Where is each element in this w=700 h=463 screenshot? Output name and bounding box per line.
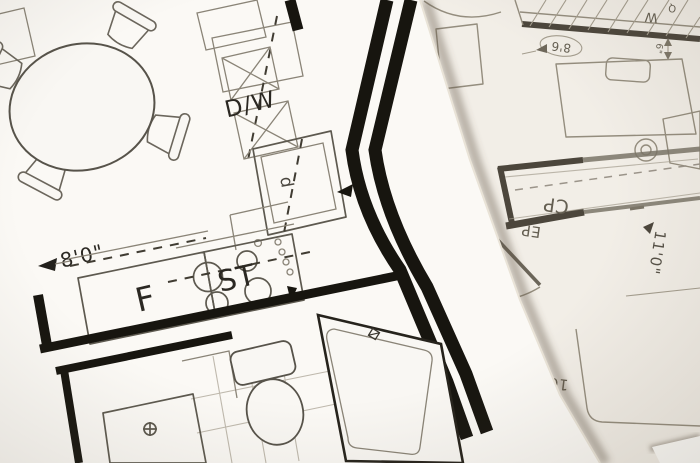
carpet-label: CP [542, 192, 571, 217]
closet-label: W [644, 8, 659, 24]
panel-label: EP [520, 221, 542, 242]
floorplan-photo: d 6'0 W Q 8'6 6" [0, 0, 700, 463]
floorplan-scene: d 6'0 W Q 8'6 6" [0, 0, 700, 463]
svg-text:6": 6" [652, 43, 663, 55]
closet-label-small: Q [667, 2, 676, 14]
dim-8-6: 8'6 [550, 39, 572, 56]
